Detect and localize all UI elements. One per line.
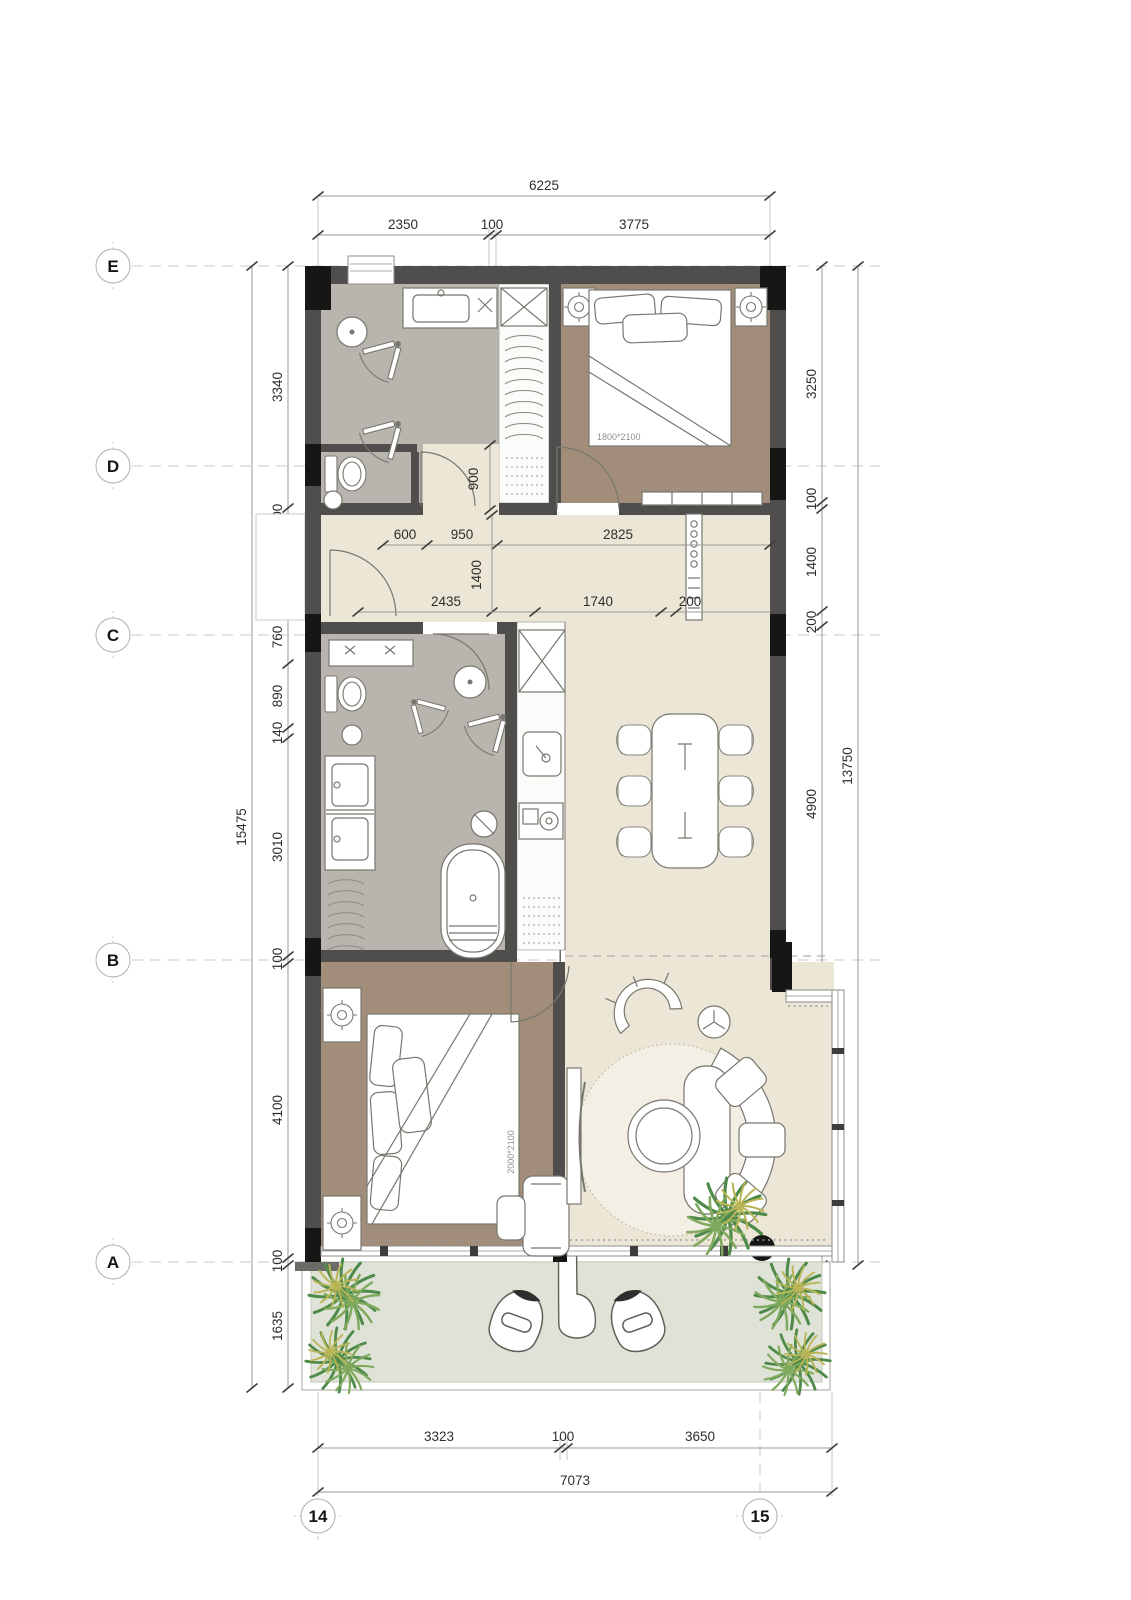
dim-left-total: 15475 [234, 808, 249, 846]
chair-icon [719, 776, 754, 806]
pillow-icon [370, 1155, 403, 1211]
dim-interior: 600 [394, 527, 417, 542]
dim-interior: 1740 [583, 594, 613, 609]
chair-icon [617, 776, 652, 806]
dim-top-total: 6225 [529, 178, 559, 193]
cushion-icon [739, 1123, 785, 1157]
dim-interior: 1400 [469, 560, 484, 590]
floor-plan-page: E D C B A 14 15 6225 2350 100 3775 15475… [0, 0, 1131, 1600]
dim-top-segment: 3775 [619, 217, 649, 232]
dim-right-segment: 4900 [804, 789, 819, 819]
dim-right-total: 13750 [840, 747, 855, 785]
dim-left-segment: 140 [270, 722, 285, 745]
dim-left-segment: 760 [270, 626, 285, 649]
dim-right-segment: 3250 [804, 369, 819, 399]
dim-bottom-segment: 3650 [685, 1429, 715, 1444]
dim-left-segment: 3010 [270, 832, 285, 862]
dim-interior: 200 [679, 594, 702, 609]
dim-interior: 900 [466, 468, 481, 491]
grid-col-label: 14 [309, 1507, 328, 1526]
grid-row-label: C [107, 626, 119, 645]
dim-left-segment: 3340 [270, 372, 285, 402]
vanity-icon [325, 756, 375, 870]
bench-icon [329, 640, 413, 666]
entry-vestibule [256, 514, 305, 620]
dim-top-segment: 2350 [388, 217, 418, 232]
pillow-icon [623, 313, 688, 343]
dim-bottom-segment: 100 [552, 1429, 575, 1444]
dim-right-segment: 200 [804, 611, 819, 634]
dim-left-segment: 100 [270, 948, 285, 971]
terrace-wall-stub [295, 1262, 339, 1271]
dim-left-segment: 100 [270, 1250, 285, 1273]
dim-interior: 950 [451, 527, 474, 542]
chair-icon [719, 725, 754, 755]
dim-bottom-segment: 3323 [424, 1429, 454, 1444]
dim-interior: 2825 [603, 527, 633, 542]
cooktop-icon [519, 803, 563, 839]
chair-icon [617, 725, 652, 755]
desk-icon [523, 1176, 569, 1256]
toilet-icon [325, 676, 366, 712]
dim-interior: 2435 [431, 594, 461, 609]
dim-bottom-total: 7073 [560, 1473, 590, 1488]
coffee-table-icon [628, 1100, 700, 1172]
bed-size-label: 1800*2100 [597, 432, 641, 442]
grid-row-label: B [107, 951, 119, 970]
grid-col-label: 15 [751, 1507, 770, 1526]
grid-row-label: E [107, 257, 118, 276]
floor-plan-drawing: E D C B A 14 15 6225 2350 100 3775 15475… [0, 0, 1131, 1600]
dim-left-segment: 4100 [270, 1095, 285, 1125]
dim-left-segment: 890 [270, 685, 285, 708]
window-icon [348, 256, 394, 284]
bed-icon: 1800*2100 [589, 290, 731, 446]
grid-row-label: A [107, 1253, 119, 1272]
bed-size-label: 2000*2100 [506, 1130, 516, 1174]
basin-icon [324, 491, 342, 509]
basin-icon [342, 725, 362, 745]
grid-row-label: D [107, 457, 119, 476]
dim-top-segment: 100 [481, 217, 504, 232]
room-hallway [321, 515, 770, 622]
chair-icon [719, 827, 754, 857]
toilet-icon [325, 456, 366, 492]
dining-furniture [617, 714, 754, 868]
chair-icon [617, 827, 652, 857]
dining-table-icon [652, 714, 718, 868]
bed-icon: 2000*2100 [367, 1014, 519, 1224]
desk-chair-icon [497, 1196, 525, 1240]
bathtub-icon [441, 844, 505, 958]
dim-right-segment: 100 [804, 488, 819, 511]
dim-right-segment: 1400 [804, 547, 819, 577]
dim-left-segment: 1635 [270, 1311, 285, 1341]
closet-niche [423, 444, 499, 515]
